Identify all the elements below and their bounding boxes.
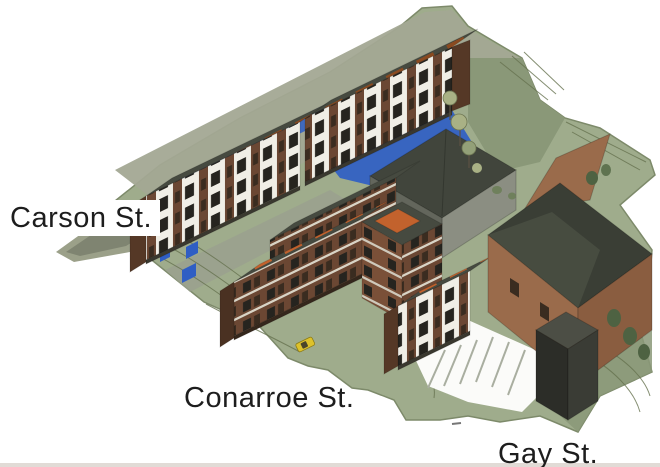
screenshot-root: Carson St. Conarroe St. Gay St. <box>0 0 660 467</box>
street-label-conarroe: Conarroe St. <box>180 380 358 416</box>
annex-building <box>536 312 598 420</box>
street-label-gay: Gay St. <box>494 436 602 467</box>
street-label-carson: Carson St. <box>2 200 160 236</box>
